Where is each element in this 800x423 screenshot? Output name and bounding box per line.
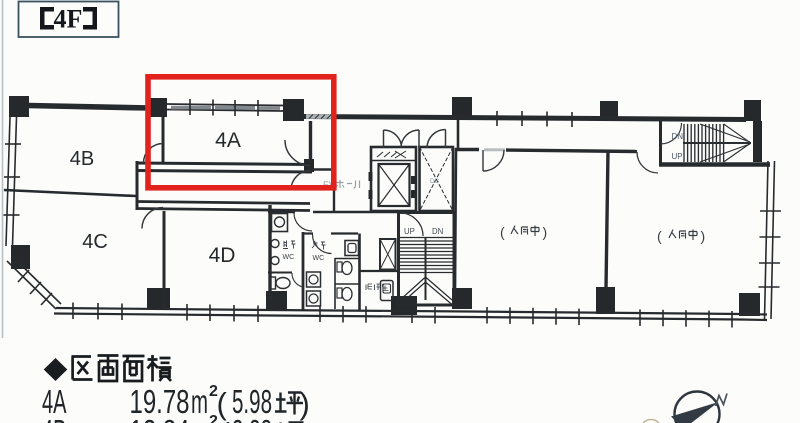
svg-text:UP: UP xyxy=(672,152,683,161)
svg-text:(: ( xyxy=(500,224,505,240)
svg-text:2: 2 xyxy=(209,413,218,423)
svg-text:(: ( xyxy=(220,416,231,423)
svg-text:4A: 4A xyxy=(215,129,241,152)
svg-text:3.88: 3.88 xyxy=(232,413,272,423)
svg-text:4C: 4C xyxy=(82,231,108,253)
svg-text:4D: 4D xyxy=(209,244,236,267)
svg-text:DN: DN xyxy=(672,132,684,141)
svg-text:4B: 4B xyxy=(70,148,94,170)
svg-text:UP: UP xyxy=(404,227,415,236)
svg-text:(: ( xyxy=(657,228,662,244)
svg-text:4B: 4B xyxy=(42,413,67,423)
svg-text:): ) xyxy=(701,228,706,244)
svg-text:m: m xyxy=(191,413,208,423)
svg-text:): ) xyxy=(543,224,548,240)
svg-text:): ) xyxy=(300,416,310,423)
svg-text:DN: DN xyxy=(432,227,443,236)
svg-text:WC: WC xyxy=(283,254,295,261)
svg-text:WC: WC xyxy=(313,255,325,262)
svg-text:12.84: 12.84 xyxy=(130,413,190,423)
svg-text:4F: 4F xyxy=(54,5,83,34)
svg-text:DS: DS xyxy=(430,178,440,185)
